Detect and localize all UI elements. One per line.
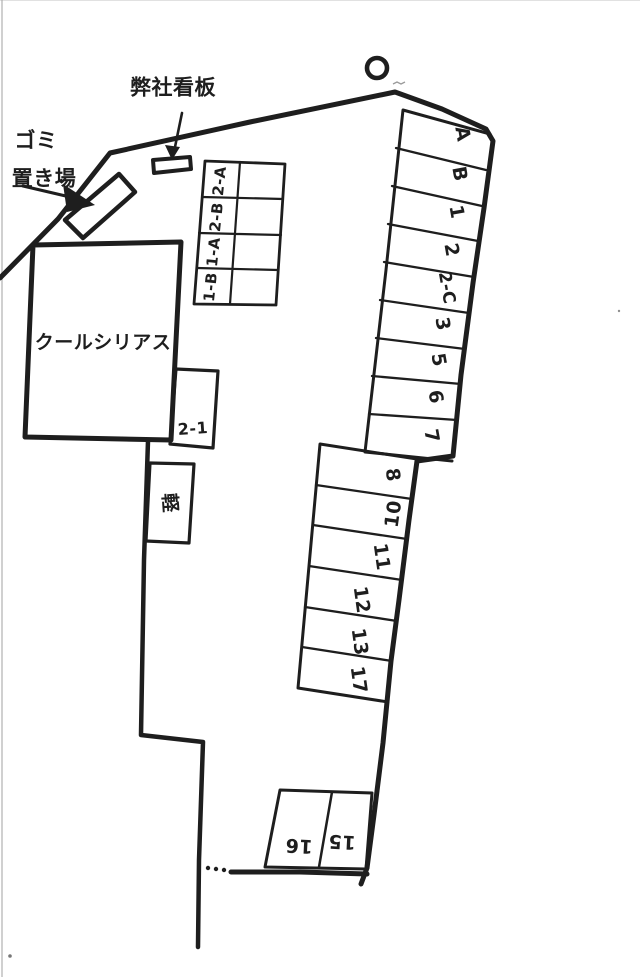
dotted-gap (206, 866, 226, 872)
faint-scribble (393, 82, 405, 84)
space-label-2b: 2-B (208, 201, 226, 232)
space-label-2c: 2-C (435, 270, 457, 305)
map-drawing (0, 0, 640, 977)
space-label-1a: 1-A (205, 236, 223, 267)
bottom-pair (265, 790, 372, 869)
right-strip-dividers (369, 148, 486, 420)
garbage-area-label-line1: ゴミ (15, 131, 58, 152)
bottom-pair-outline (265, 790, 372, 869)
space-label-13: 13 (348, 627, 371, 657)
space-label-kei: 軽 (159, 493, 179, 514)
building-label: クールシリアス (35, 334, 172, 353)
inner-path-line (141, 441, 203, 947)
space-label-15: 15 (328, 831, 356, 851)
space-label-12: 12 (350, 585, 373, 615)
circle-marker (367, 58, 387, 78)
space-label-2-1: 2-1 (177, 420, 208, 438)
parking-lot-map: 弊社看板 ゴミ 置き場 クールシリアス 2-1 軽 A B 1 2 2-C 3 … (0, 0, 640, 977)
scan-specks (8, 310, 620, 958)
bottom-edge-line (231, 872, 367, 874)
space-label-1b: 1-B (202, 271, 220, 302)
middle-parking-strip (298, 444, 417, 702)
space-label-11: 11 (370, 542, 393, 572)
garbage-area-label-line2: 置き場 (12, 169, 77, 190)
company-sign-label: 弊社看板 (130, 78, 216, 99)
space-label-8: 8 (382, 467, 403, 483)
sign-arrow-line (175, 113, 182, 147)
space-label-a: A (451, 125, 472, 143)
space-label-2a: 2-A (211, 165, 229, 196)
space-label-17: 17 (347, 665, 370, 695)
space-label-16: 16 (285, 835, 313, 855)
space-label-10: 10 (383, 499, 406, 529)
